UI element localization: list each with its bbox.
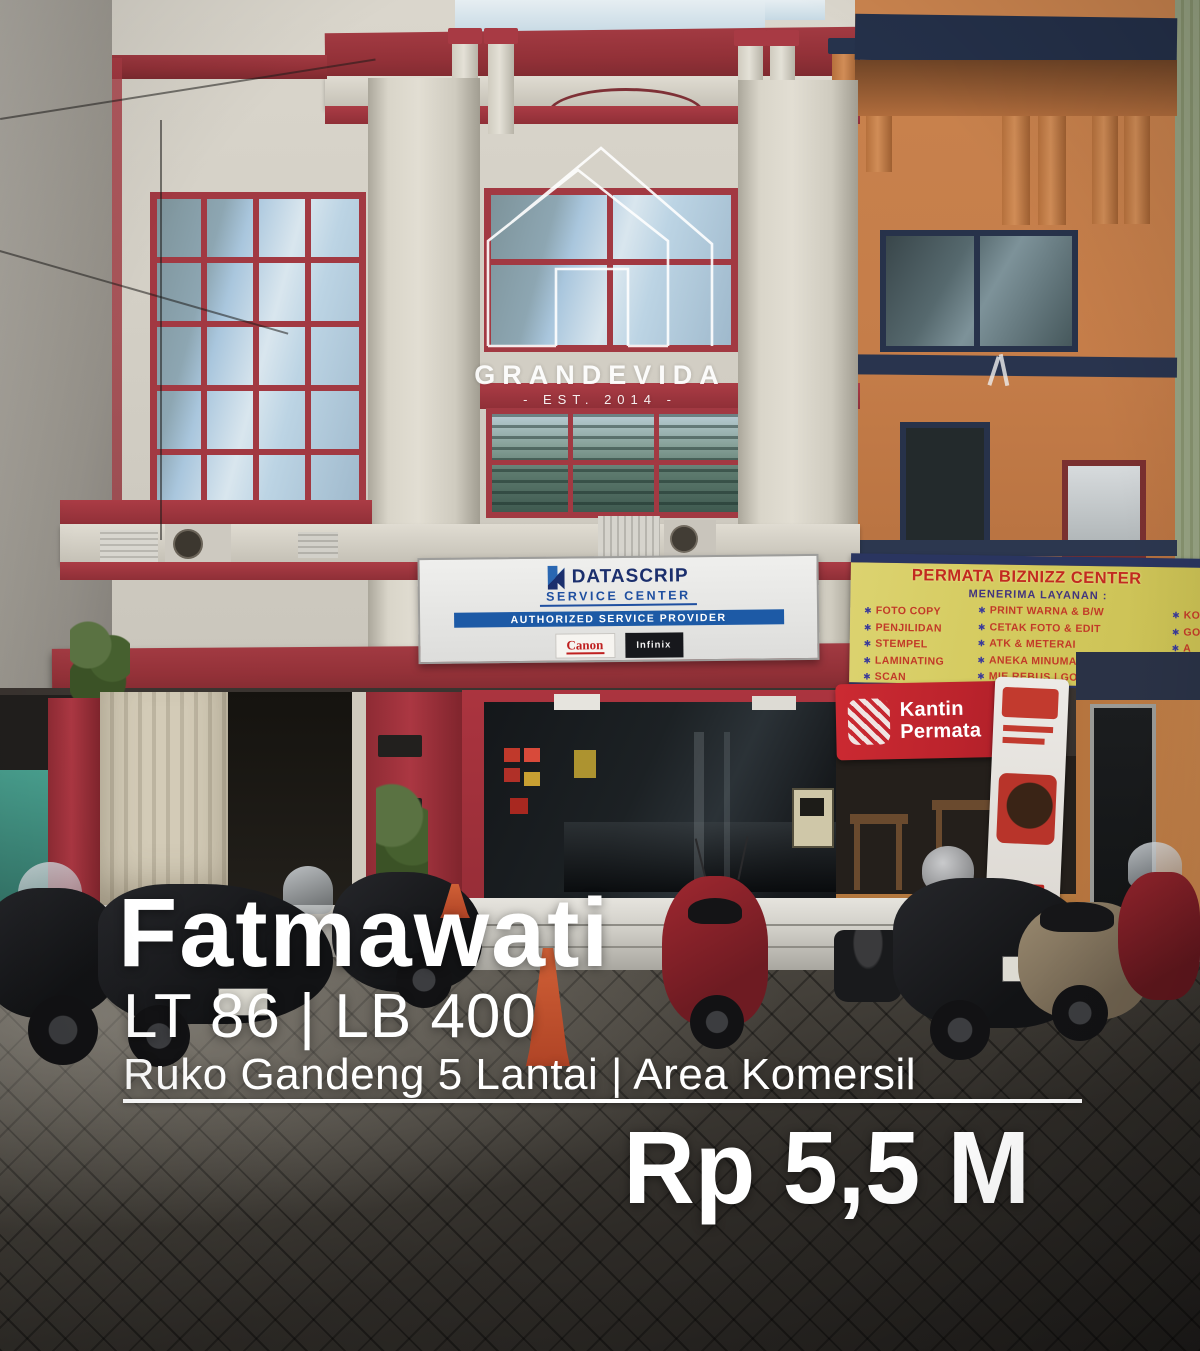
watermark-brand: GRANDEVIDA [420, 360, 780, 391]
listing-category: Ruko Gandeng 5 Lantai | Area Komersil [123, 1053, 916, 1097]
listing-location: Fatmawati [118, 884, 610, 981]
property-listing-photo: DATASCRIP SERVICE CENTER AUTHORIZED SERV… [0, 0, 1200, 1351]
listing-specs: LT 86 | LB 400 [123, 986, 537, 1048]
watermark-established: - EST. 2014 - [420, 392, 780, 407]
listing-price: Rp 5,5 M [41, 1116, 1030, 1219]
divider-line [123, 1099, 1082, 1103]
